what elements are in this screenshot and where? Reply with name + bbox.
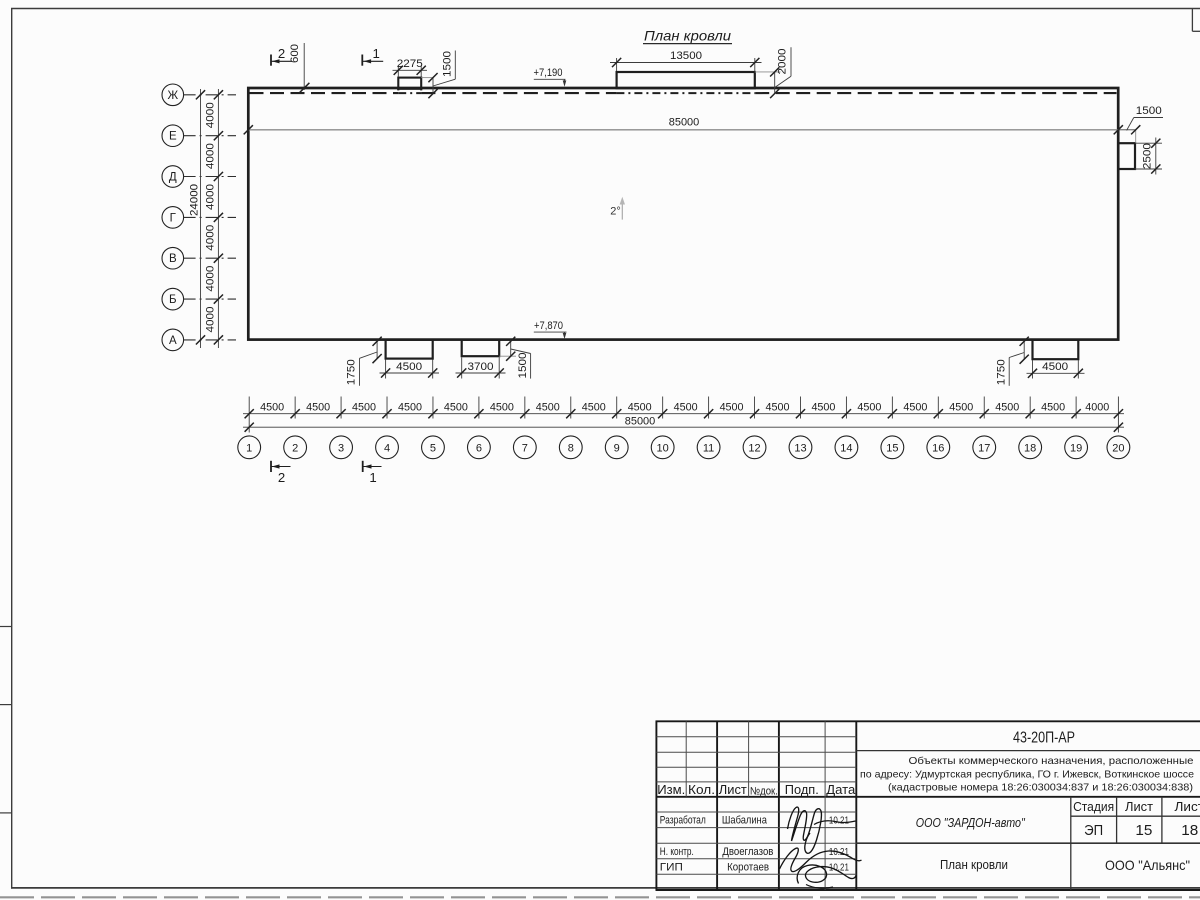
svg-text:Г: Г (170, 212, 177, 224)
svg-text:4500: 4500 (536, 401, 560, 413)
svg-text:20: 20 (1112, 442, 1124, 454)
svg-text:2500: 2500 (1142, 143, 1154, 169)
svg-text:4500: 4500 (766, 401, 790, 413)
svg-text:15: 15 (886, 442, 898, 454)
svg-text:1500: 1500 (517, 353, 529, 379)
svg-text:4500: 4500 (857, 401, 881, 413)
svg-text:Подп.: Подп. (785, 782, 819, 797)
svg-text:7: 7 (522, 442, 528, 454)
svg-text:2: 2 (292, 442, 298, 454)
svg-text:8: 8 (568, 442, 574, 454)
svg-text:Е: Е (169, 131, 177, 143)
svg-text:4000: 4000 (1085, 401, 1109, 413)
svg-text:4500: 4500 (396, 361, 422, 373)
svg-text:Лист: Лист (719, 782, 747, 797)
svg-text:16: 16 (932, 442, 944, 454)
svg-text:6: 6 (476, 442, 482, 454)
svg-text:4000: 4000 (205, 102, 217, 128)
svg-text:13: 13 (794, 442, 806, 454)
svg-text:4500: 4500 (490, 401, 514, 413)
svg-text:по адресу: Удмуртская республи: по адресу: Удмуртская республика, ГО г. … (860, 769, 1194, 781)
svg-text:№док.: №док. (750, 786, 778, 798)
svg-text:Н. контр.: Н. контр. (660, 846, 694, 858)
svg-text:Коротаев: Коротаев (727, 862, 769, 874)
svg-text:План кровли: План кровли (644, 28, 731, 44)
svg-text:600: 600 (289, 44, 301, 63)
svg-text:4500: 4500 (398, 401, 422, 413)
svg-text:4000: 4000 (205, 225, 217, 251)
svg-text:4500: 4500 (628, 401, 652, 413)
svg-text:1750: 1750 (995, 359, 1007, 385)
svg-text:Кол.: Кол. (688, 782, 715, 797)
svg-text:14: 14 (840, 442, 852, 454)
svg-text:4500: 4500 (720, 401, 744, 413)
svg-text:1500: 1500 (1136, 105, 1162, 117)
svg-text:Листов: Листов (1175, 799, 1200, 814)
svg-text:Д: Д (169, 172, 177, 184)
svg-text:1: 1 (369, 470, 376, 485)
svg-text:Шабалина: Шабалина (722, 815, 767, 827)
svg-text:В: В (169, 253, 177, 265)
svg-text:ООО "ЗАРДОН-авто": ООО "ЗАРДОН-авто" (916, 815, 1026, 830)
svg-text:1: 1 (373, 46, 380, 61)
svg-text:ООО "Альянс": ООО "Альянс" (1105, 857, 1190, 873)
svg-text:4500: 4500 (674, 401, 698, 413)
svg-text:ГИП: ГИП (660, 862, 683, 874)
svg-text:Объекты коммерческого назначен: Объекты коммерческого назначения, распол… (909, 755, 1194, 767)
svg-text:4500: 4500 (949, 401, 973, 413)
svg-text:1750: 1750 (346, 359, 358, 385)
svg-text:Двоеглазов: Двоеглазов (722, 846, 773, 858)
svg-text:Изм.: Изм. (657, 782, 685, 797)
svg-text:11: 11 (703, 442, 714, 454)
svg-text:Б: Б (169, 294, 177, 306)
svg-text:15: 15 (1135, 823, 1152, 839)
svg-text:4500: 4500 (444, 401, 468, 413)
svg-text:1500: 1500 (442, 51, 454, 77)
svg-text:1: 1 (246, 442, 252, 454)
svg-text:24000: 24000 (189, 184, 201, 216)
svg-text:85000: 85000 (669, 116, 700, 128)
svg-text:43-20П-АР: 43-20П-АР (1013, 729, 1075, 746)
svg-text:12: 12 (748, 442, 760, 454)
svg-text:4500: 4500 (306, 401, 330, 413)
svg-text:4500: 4500 (582, 401, 606, 413)
svg-text:Разработал: Разработал (660, 815, 706, 827)
svg-text:85000: 85000 (625, 416, 656, 428)
svg-text:4500: 4500 (1042, 361, 1068, 373)
svg-text:4: 4 (384, 442, 390, 454)
svg-text:5: 5 (430, 442, 436, 454)
svg-text:13500: 13500 (670, 50, 702, 62)
svg-text:2000: 2000 (776, 49, 788, 75)
svg-text:ЭП: ЭП (1084, 823, 1103, 839)
svg-text:+7,190: +7,190 (534, 67, 563, 79)
svg-text:10: 10 (657, 442, 669, 454)
svg-text:2°: 2° (610, 206, 621, 218)
svg-text:4500: 4500 (903, 401, 927, 413)
svg-text:4000: 4000 (205, 307, 217, 333)
svg-text:17: 17 (978, 442, 990, 454)
svg-text:План кровли: План кровли (940, 857, 1008, 872)
svg-text:4500: 4500 (352, 401, 376, 413)
svg-text:2: 2 (278, 470, 285, 485)
svg-text:2275: 2275 (397, 58, 423, 70)
svg-text:Стадия: Стадия (1073, 799, 1114, 814)
svg-text:18: 18 (1181, 823, 1198, 839)
svg-text:3700: 3700 (468, 361, 494, 373)
svg-text:4500: 4500 (995, 401, 1019, 413)
svg-text:4500: 4500 (811, 401, 835, 413)
svg-text:(кадастровые номера 18:26:0300: (кадастровые номера 18:26:030034:837 и 1… (888, 782, 1193, 793)
svg-text:+7,870: +7,870 (534, 320, 563, 332)
svg-text:2: 2 (278, 46, 285, 61)
svg-text:19: 19 (1070, 442, 1082, 454)
svg-text:4000: 4000 (205, 143, 217, 169)
svg-text:Ж: Ж (167, 90, 178, 102)
svg-text:4000: 4000 (205, 266, 217, 292)
svg-text:4500: 4500 (1041, 401, 1065, 413)
svg-text:18: 18 (1024, 442, 1036, 454)
svg-text:Лист: Лист (1125, 799, 1153, 814)
svg-text:4000: 4000 (205, 184, 217, 210)
svg-text:А: А (169, 335, 177, 347)
svg-text:4500: 4500 (260, 401, 284, 413)
svg-text:3: 3 (338, 442, 344, 454)
svg-text:9: 9 (614, 442, 620, 454)
svg-text:Дата: Дата (826, 782, 856, 797)
